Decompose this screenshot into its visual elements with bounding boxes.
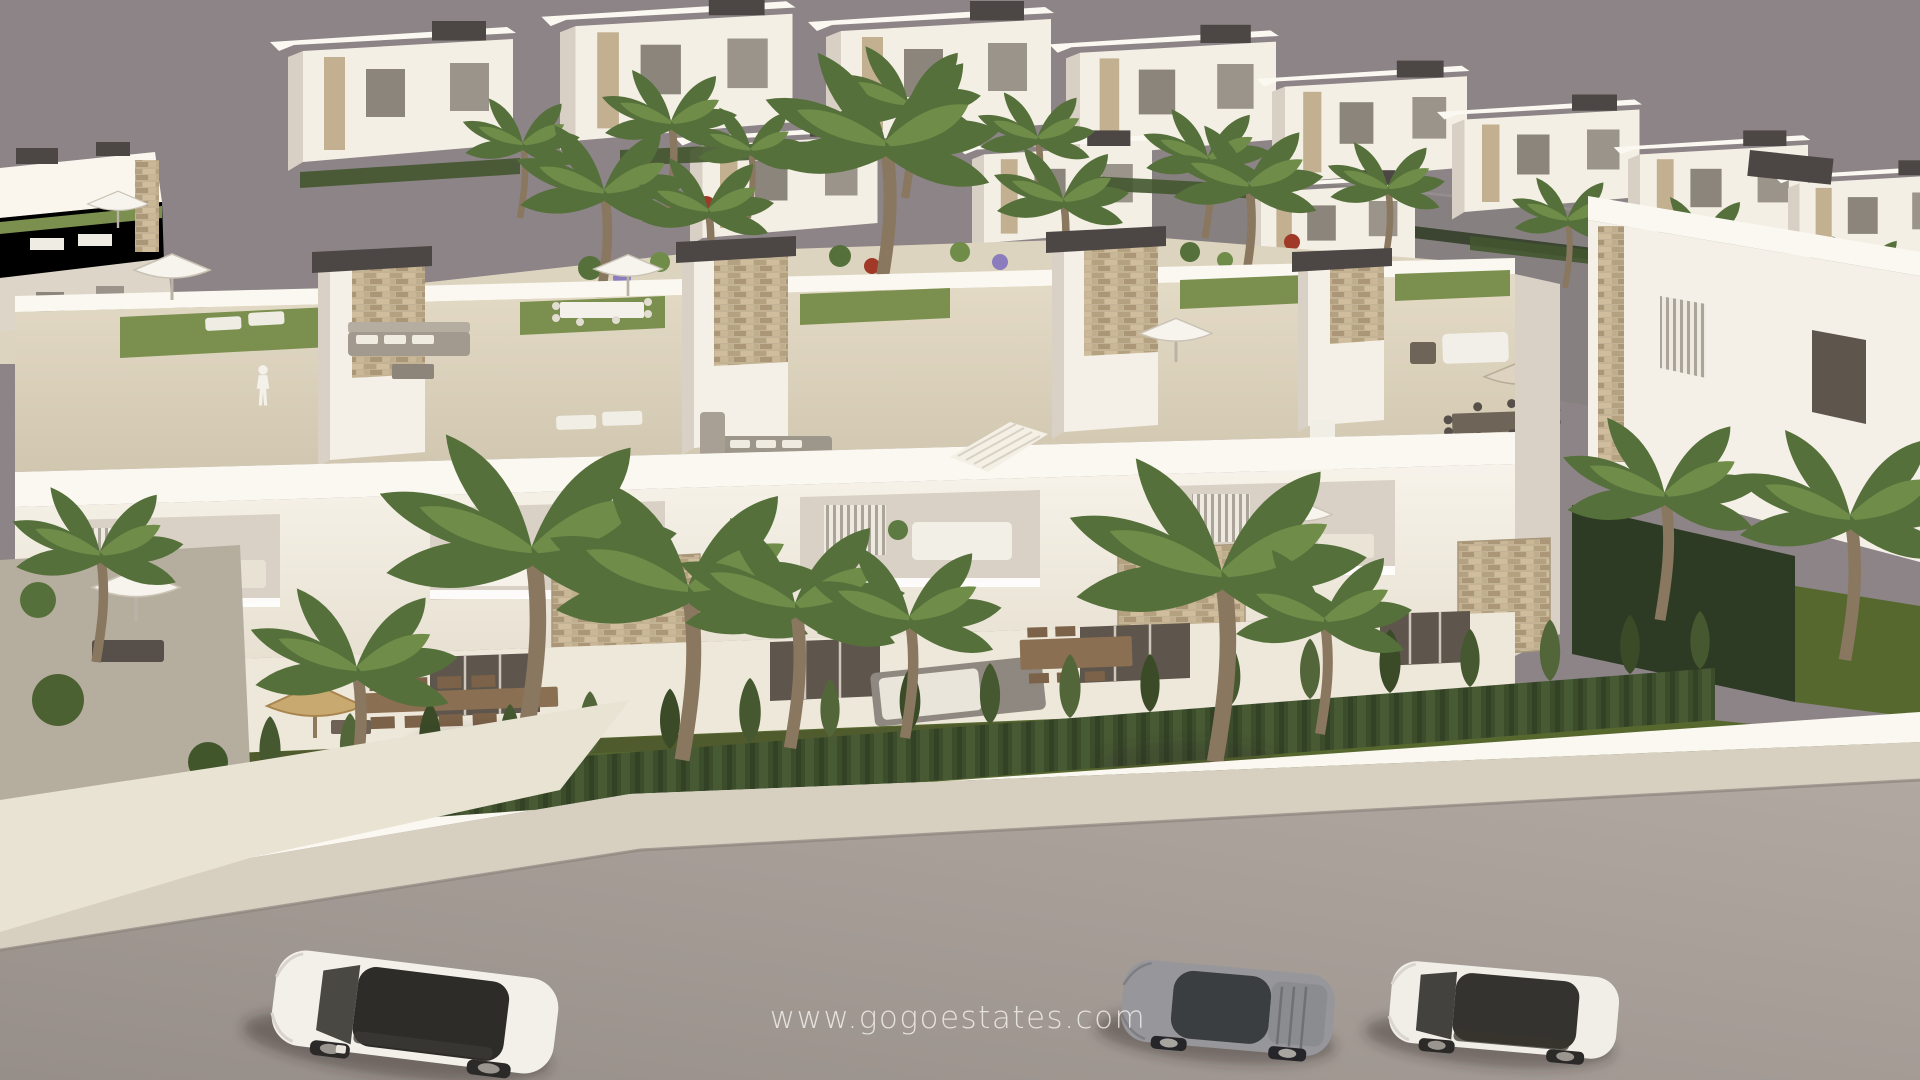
watermark-text: www.gogoestates.com	[770, 1000, 1147, 1036]
stair-tower	[1292, 248, 1392, 432]
sun-lounger	[248, 311, 285, 326]
sun-lounger	[205, 316, 242, 331]
stair-tower	[312, 246, 432, 467]
render-image: www.gogoestates.com	[0, 0, 1920, 1080]
daybed	[1442, 332, 1509, 364]
stair-tower	[676, 236, 796, 455]
sun-lounger	[602, 411, 642, 426]
bougainvillea	[1284, 234, 1300, 250]
side-table	[1410, 342, 1436, 364]
sun-lounger	[556, 415, 596, 430]
